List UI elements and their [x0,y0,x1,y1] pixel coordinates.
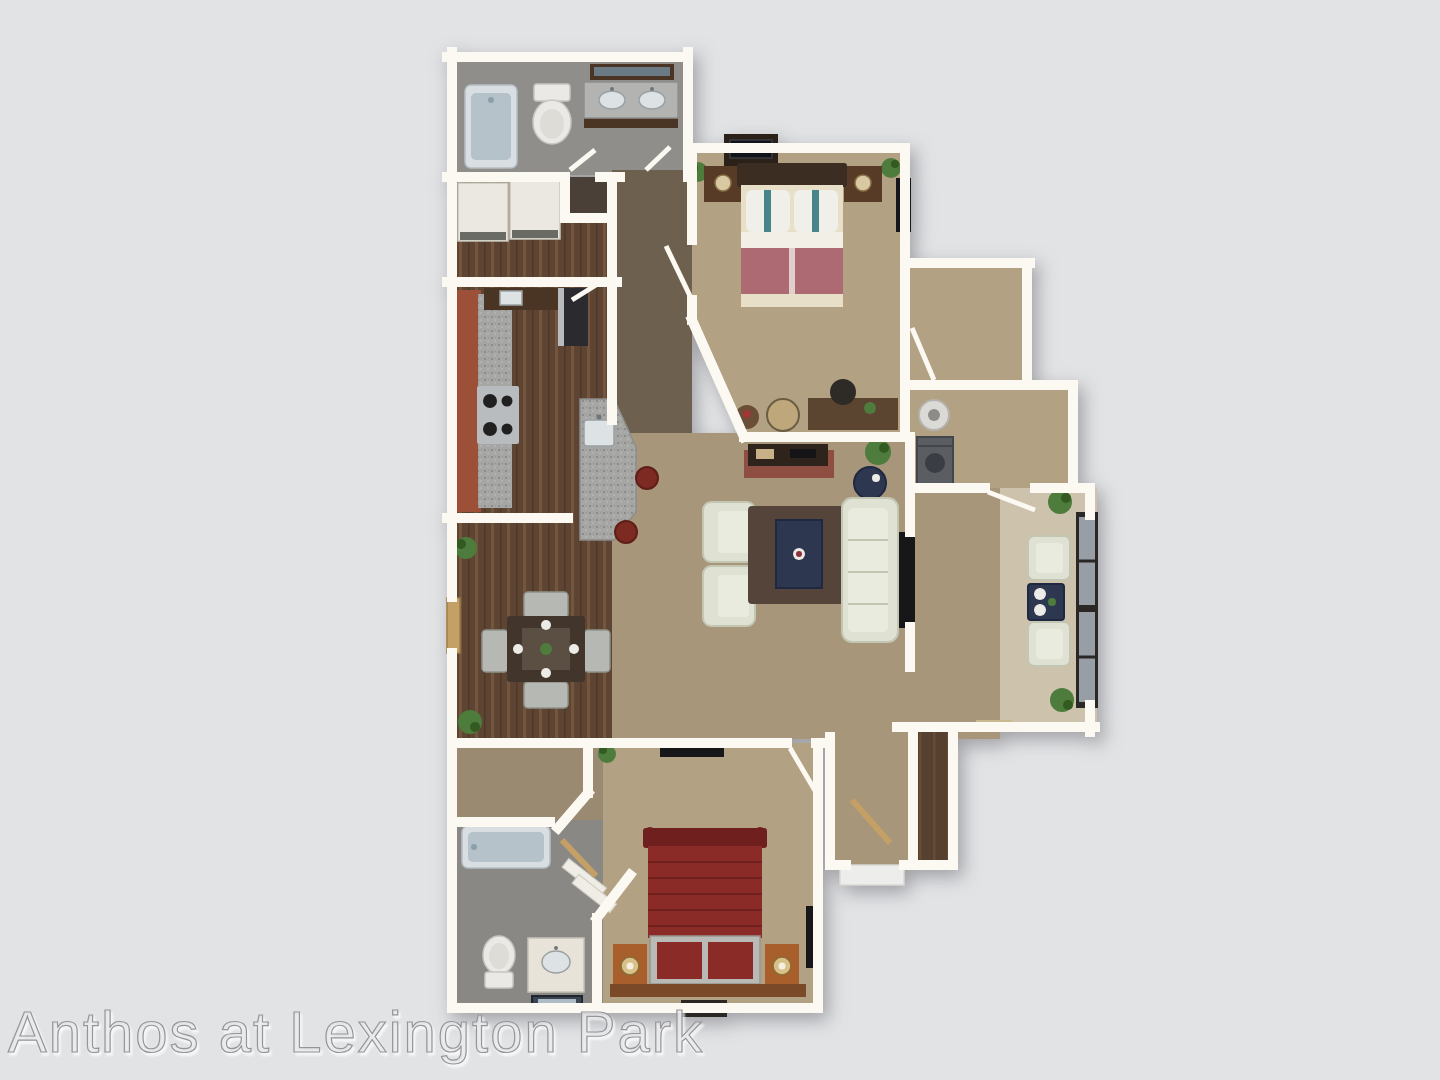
bathroom-vestibule-floor [455,748,603,820]
water-heater [919,400,949,430]
main-toilet [533,84,571,144]
apartment-unit [447,52,1098,1017]
master-bed [737,163,847,307]
vanity-mirror [590,64,674,80]
nightstand [704,166,742,202]
second-toilet [483,936,515,988]
dining-chair [524,682,568,708]
potted-plant [458,710,482,734]
patio-table [1028,584,1064,620]
dining-side-door [447,598,460,653]
foot-bench [650,936,760,984]
coffee-table [776,520,822,588]
closet-passage-floor [565,218,612,284]
second-bathtub [462,826,550,868]
storage-unit-top [512,230,558,238]
potted-plant [865,439,891,465]
potted-plant [1050,688,1074,712]
second-bed [643,827,767,938]
bar-stool [615,521,637,543]
storage-unit-top [460,232,506,240]
potted-plant [881,158,901,178]
stove [477,386,519,444]
bar-stool [636,467,658,489]
patio-chair [1028,536,1070,580]
bed-base-board [610,984,806,997]
counter-dishrack [500,291,522,305]
hallway-floor [612,170,692,440]
linen-closet-floor [565,177,612,218]
nightstand [844,166,882,202]
armchair [703,566,755,626]
patio-chair [1028,622,1070,666]
ottoman [767,399,799,431]
round-side-table [854,467,886,499]
watermark-text: Anthos at Lexington Park [8,999,704,1064]
entry-hall-floor [830,737,913,867]
living-room-tv [899,532,915,628]
potted-plant [455,537,477,559]
laundry-room [917,400,953,485]
media-console [748,444,828,466]
sofa [842,498,898,642]
dining-chair [482,630,508,672]
entry-closet-floor [913,732,953,865]
dining-table [507,616,585,682]
patio-window-wall [1076,512,1098,708]
armchair [703,502,755,562]
second-vanity [528,938,584,992]
nightstand [765,944,799,988]
nightstand [613,944,647,988]
potted-plant [1048,490,1072,514]
washer-dryer [917,437,953,485]
double-sink-vanity [584,82,678,128]
dining-chair [524,592,568,618]
main-bathtub [465,85,517,168]
floorplan-image: Anthos at Lexington Park [0,0,1440,1080]
dining-chair [584,630,610,672]
